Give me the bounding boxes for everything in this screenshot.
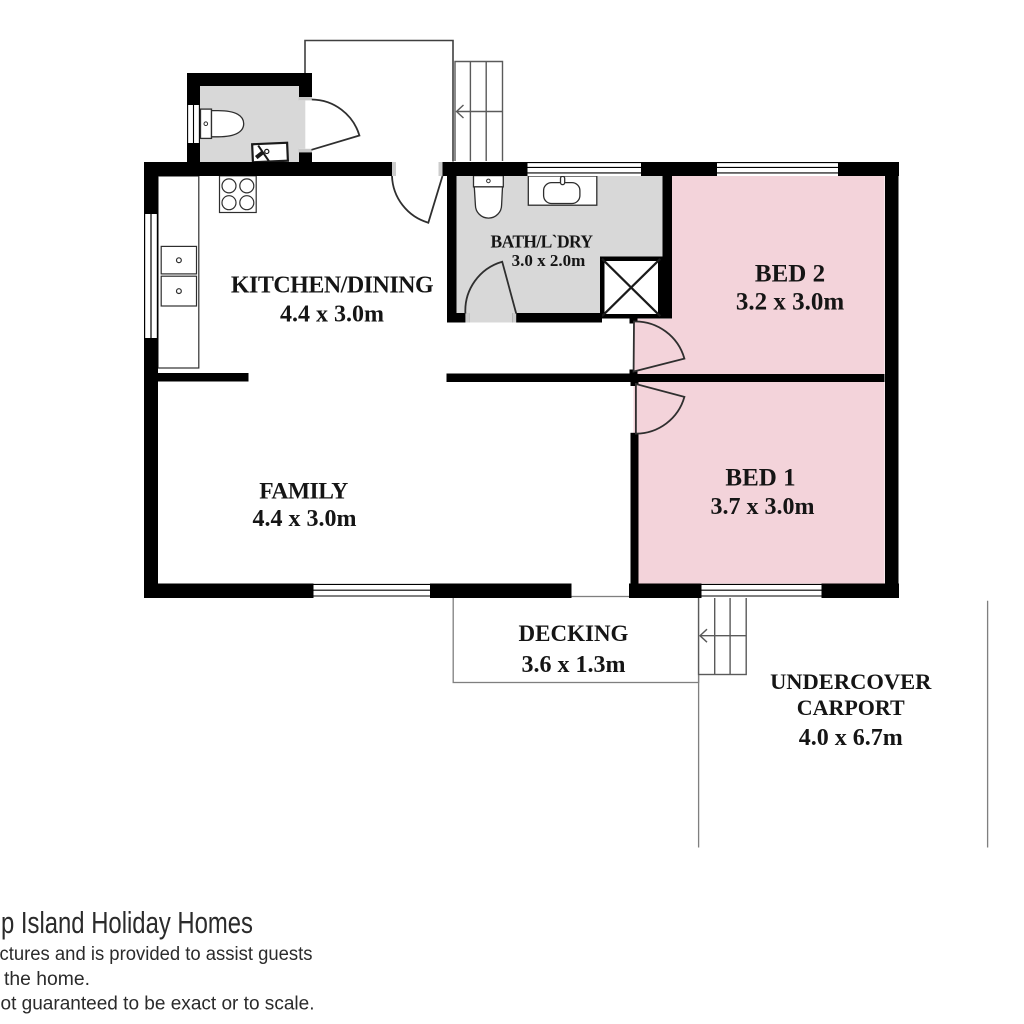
svg-text:4.4 x 3.0m: 4.4 x 3.0m (253, 506, 357, 532)
svg-text:CARPORT: CARPORT (797, 695, 905, 720)
svg-text:ot guaranteed to be exact or t: ot guaranteed to be exact or to scale. (1, 994, 315, 1015)
svg-text:4.0 x 6.7m: 4.0 x 6.7m (799, 725, 903, 751)
svg-text:p Island Holiday Homes: p Island Holiday Homes (1, 905, 253, 940)
svg-text:KITCHEN/DINING: KITCHEN/DINING (231, 273, 434, 299)
svg-text:3.2 x 3.0m: 3.2 x 3.0m (736, 289, 845, 316)
svg-text:BATH/L`DRY: BATH/L`DRY (491, 232, 594, 252)
svg-text:3.6 x 1.3m: 3.6 x 1.3m (522, 652, 626, 678)
svg-text:FAMILY: FAMILY (259, 479, 348, 505)
svg-text:UNDERCOVER: UNDERCOVER (770, 669, 932, 694)
svg-text:ctures and is provided to assi: ctures and is provided to assist guests (0, 944, 313, 965)
svg-text:3.7 x 3.0m: 3.7 x 3.0m (711, 494, 815, 520)
svg-text:the home.: the home. (4, 969, 90, 990)
svg-text:3.0 x 2.0m: 3.0 x 2.0m (512, 251, 586, 270)
svg-text:DECKING: DECKING (519, 621, 629, 646)
svg-text:BED 1: BED 1 (725, 465, 795, 492)
svg-text:BED 2: BED 2 (755, 261, 825, 288)
svg-text:4.4 x 3.0m: 4.4 x 3.0m (280, 302, 384, 328)
